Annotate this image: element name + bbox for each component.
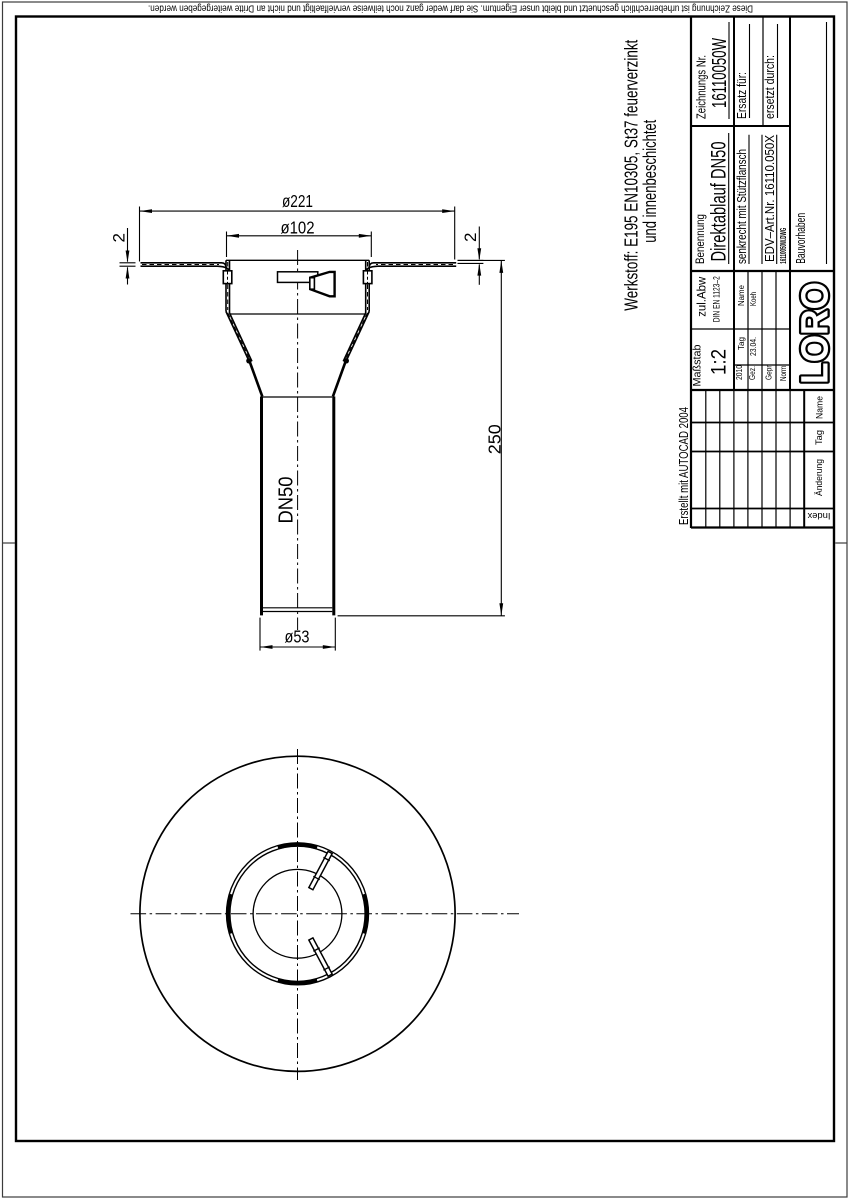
svg-text:Tag: Tag xyxy=(814,430,825,445)
svg-text:ø53: ø53 xyxy=(285,626,310,646)
svg-text:DN50: DN50 xyxy=(276,477,298,524)
svg-text:ø102: ø102 xyxy=(281,218,315,238)
svg-text:Zeichnungs Nr.: Zeichnungs Nr. xyxy=(694,55,709,119)
svg-text:Änderung: Änderung xyxy=(814,459,825,496)
svg-text:2010: 2010 xyxy=(734,365,744,380)
svg-text:Benennung: Benennung xyxy=(693,214,707,264)
svg-text:und innenbeschichtet: und innenbeschichtet xyxy=(639,120,660,243)
svg-text:Bauvorhaben: Bauvorhaben xyxy=(794,213,808,264)
svg-text:Index: Index xyxy=(807,510,830,521)
svg-text:EDV–Art.Nr. 16110.050X: EDV–Art.Nr. 16110.050X xyxy=(763,134,777,262)
svg-text:DIN EN 1123–2: DIN EN 1123–2 xyxy=(712,276,722,322)
svg-text:Name: Name xyxy=(736,285,746,306)
svg-text:LORO: LORO xyxy=(795,282,837,384)
svg-text:Ersatz für:: Ersatz für: xyxy=(734,72,749,119)
svg-text:2: 2 xyxy=(461,233,480,242)
svg-text:2: 2 xyxy=(110,233,129,242)
svg-text:Norm.: Norm. xyxy=(778,364,788,381)
svg-text:ø221: ø221 xyxy=(282,191,313,211)
svg-text:Gez.: Gez. xyxy=(747,366,757,380)
svg-text:Erstellt mit AUTOCAD 2004: Erstellt mit AUTOCAD 2004 xyxy=(676,407,691,525)
svg-text:senkrecht mit Stützflansch: senkrecht mit Stützflansch xyxy=(735,149,749,264)
svg-text:1:2: 1:2 xyxy=(708,349,731,375)
svg-text:Koeh: Koeh xyxy=(748,292,758,306)
svg-text:16110050W.DWG: 16110050W.DWG xyxy=(779,228,788,264)
svg-text:250: 250 xyxy=(484,424,504,454)
svg-text:23.04.: 23.04. xyxy=(748,337,758,356)
svg-text:Gepr.: Gepr. xyxy=(764,364,774,380)
svg-text:Tag: Tag xyxy=(736,337,746,350)
svg-text:ersetzt durch:: ersetzt durch: xyxy=(762,55,777,119)
svg-text:Direktablauf DN50: Direktablauf DN50 xyxy=(708,142,731,262)
svg-text:zul.Abw: zul.Abw xyxy=(696,276,708,317)
svg-text:Maßstab: Maßstab xyxy=(692,345,704,387)
svg-text:Name: Name xyxy=(815,396,826,419)
svg-text:16110050W: 16110050W xyxy=(709,38,731,108)
svg-text:Diese Zeichnung ist urheberrec: Diese Zeichnung ist urheberrechtlich ges… xyxy=(148,2,753,14)
